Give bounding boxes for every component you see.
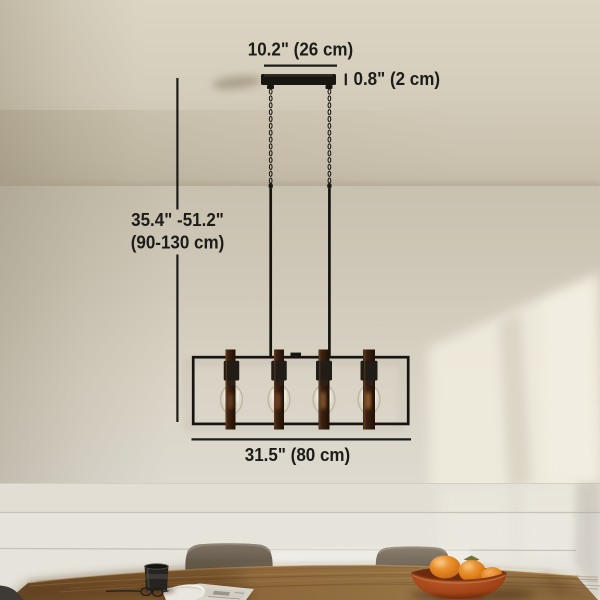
- svg-text:0.8" (2 cm): 0.8" (2 cm): [354, 68, 441, 89]
- svg-text:35.4" -51.2": 35.4" -51.2": [131, 209, 224, 230]
- svg-text:(90-130 cm): (90-130 cm): [131, 232, 225, 253]
- svg-text:10.2" (26 cm): 10.2" (26 cm): [248, 39, 354, 60]
- svg-text:31.5" (80 cm): 31.5" (80 cm): [245, 444, 351, 465]
